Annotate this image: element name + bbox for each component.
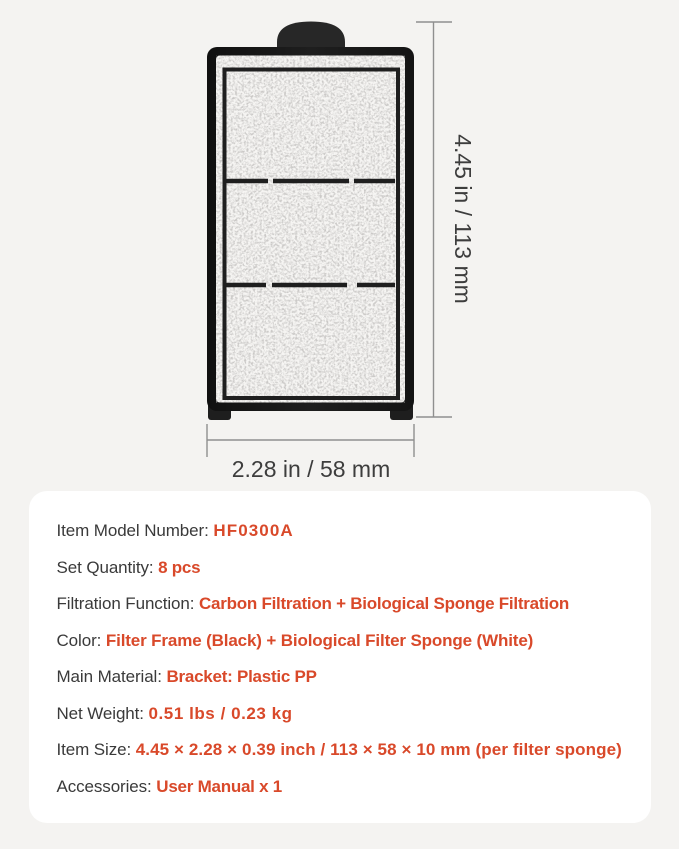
svg-text:2.28 in / 58 mm: 2.28 in / 58 mm bbox=[232, 456, 391, 482]
svg-text:4.45 in / 113 mm: 4.45 in / 113 mm bbox=[450, 134, 476, 304]
